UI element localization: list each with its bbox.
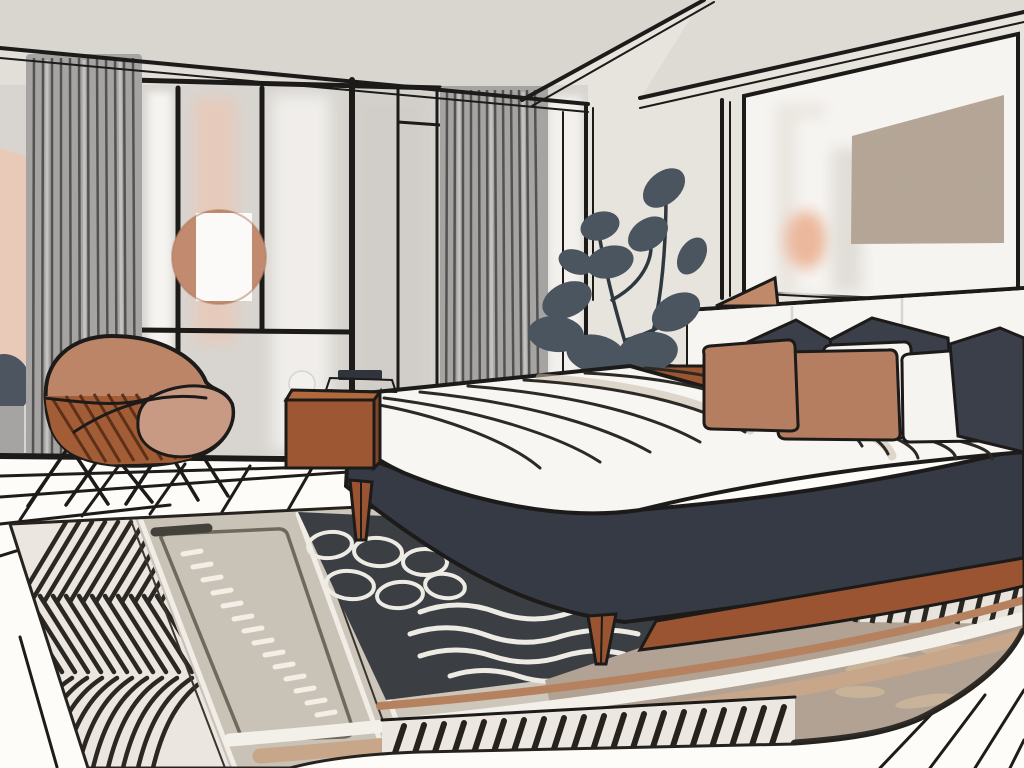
vase-peach-blob (785, 211, 827, 269)
runner-top-bar (155, 528, 208, 532)
wall-mirror (172, 210, 266, 304)
bedroom-illustration (0, 0, 1024, 768)
bedroom-scene (0, 0, 1024, 768)
nightstand-front (286, 400, 374, 468)
pillow-charcoal (950, 328, 1024, 452)
mirror-reflection (196, 213, 252, 301)
pillow-terracotta (704, 340, 799, 431)
